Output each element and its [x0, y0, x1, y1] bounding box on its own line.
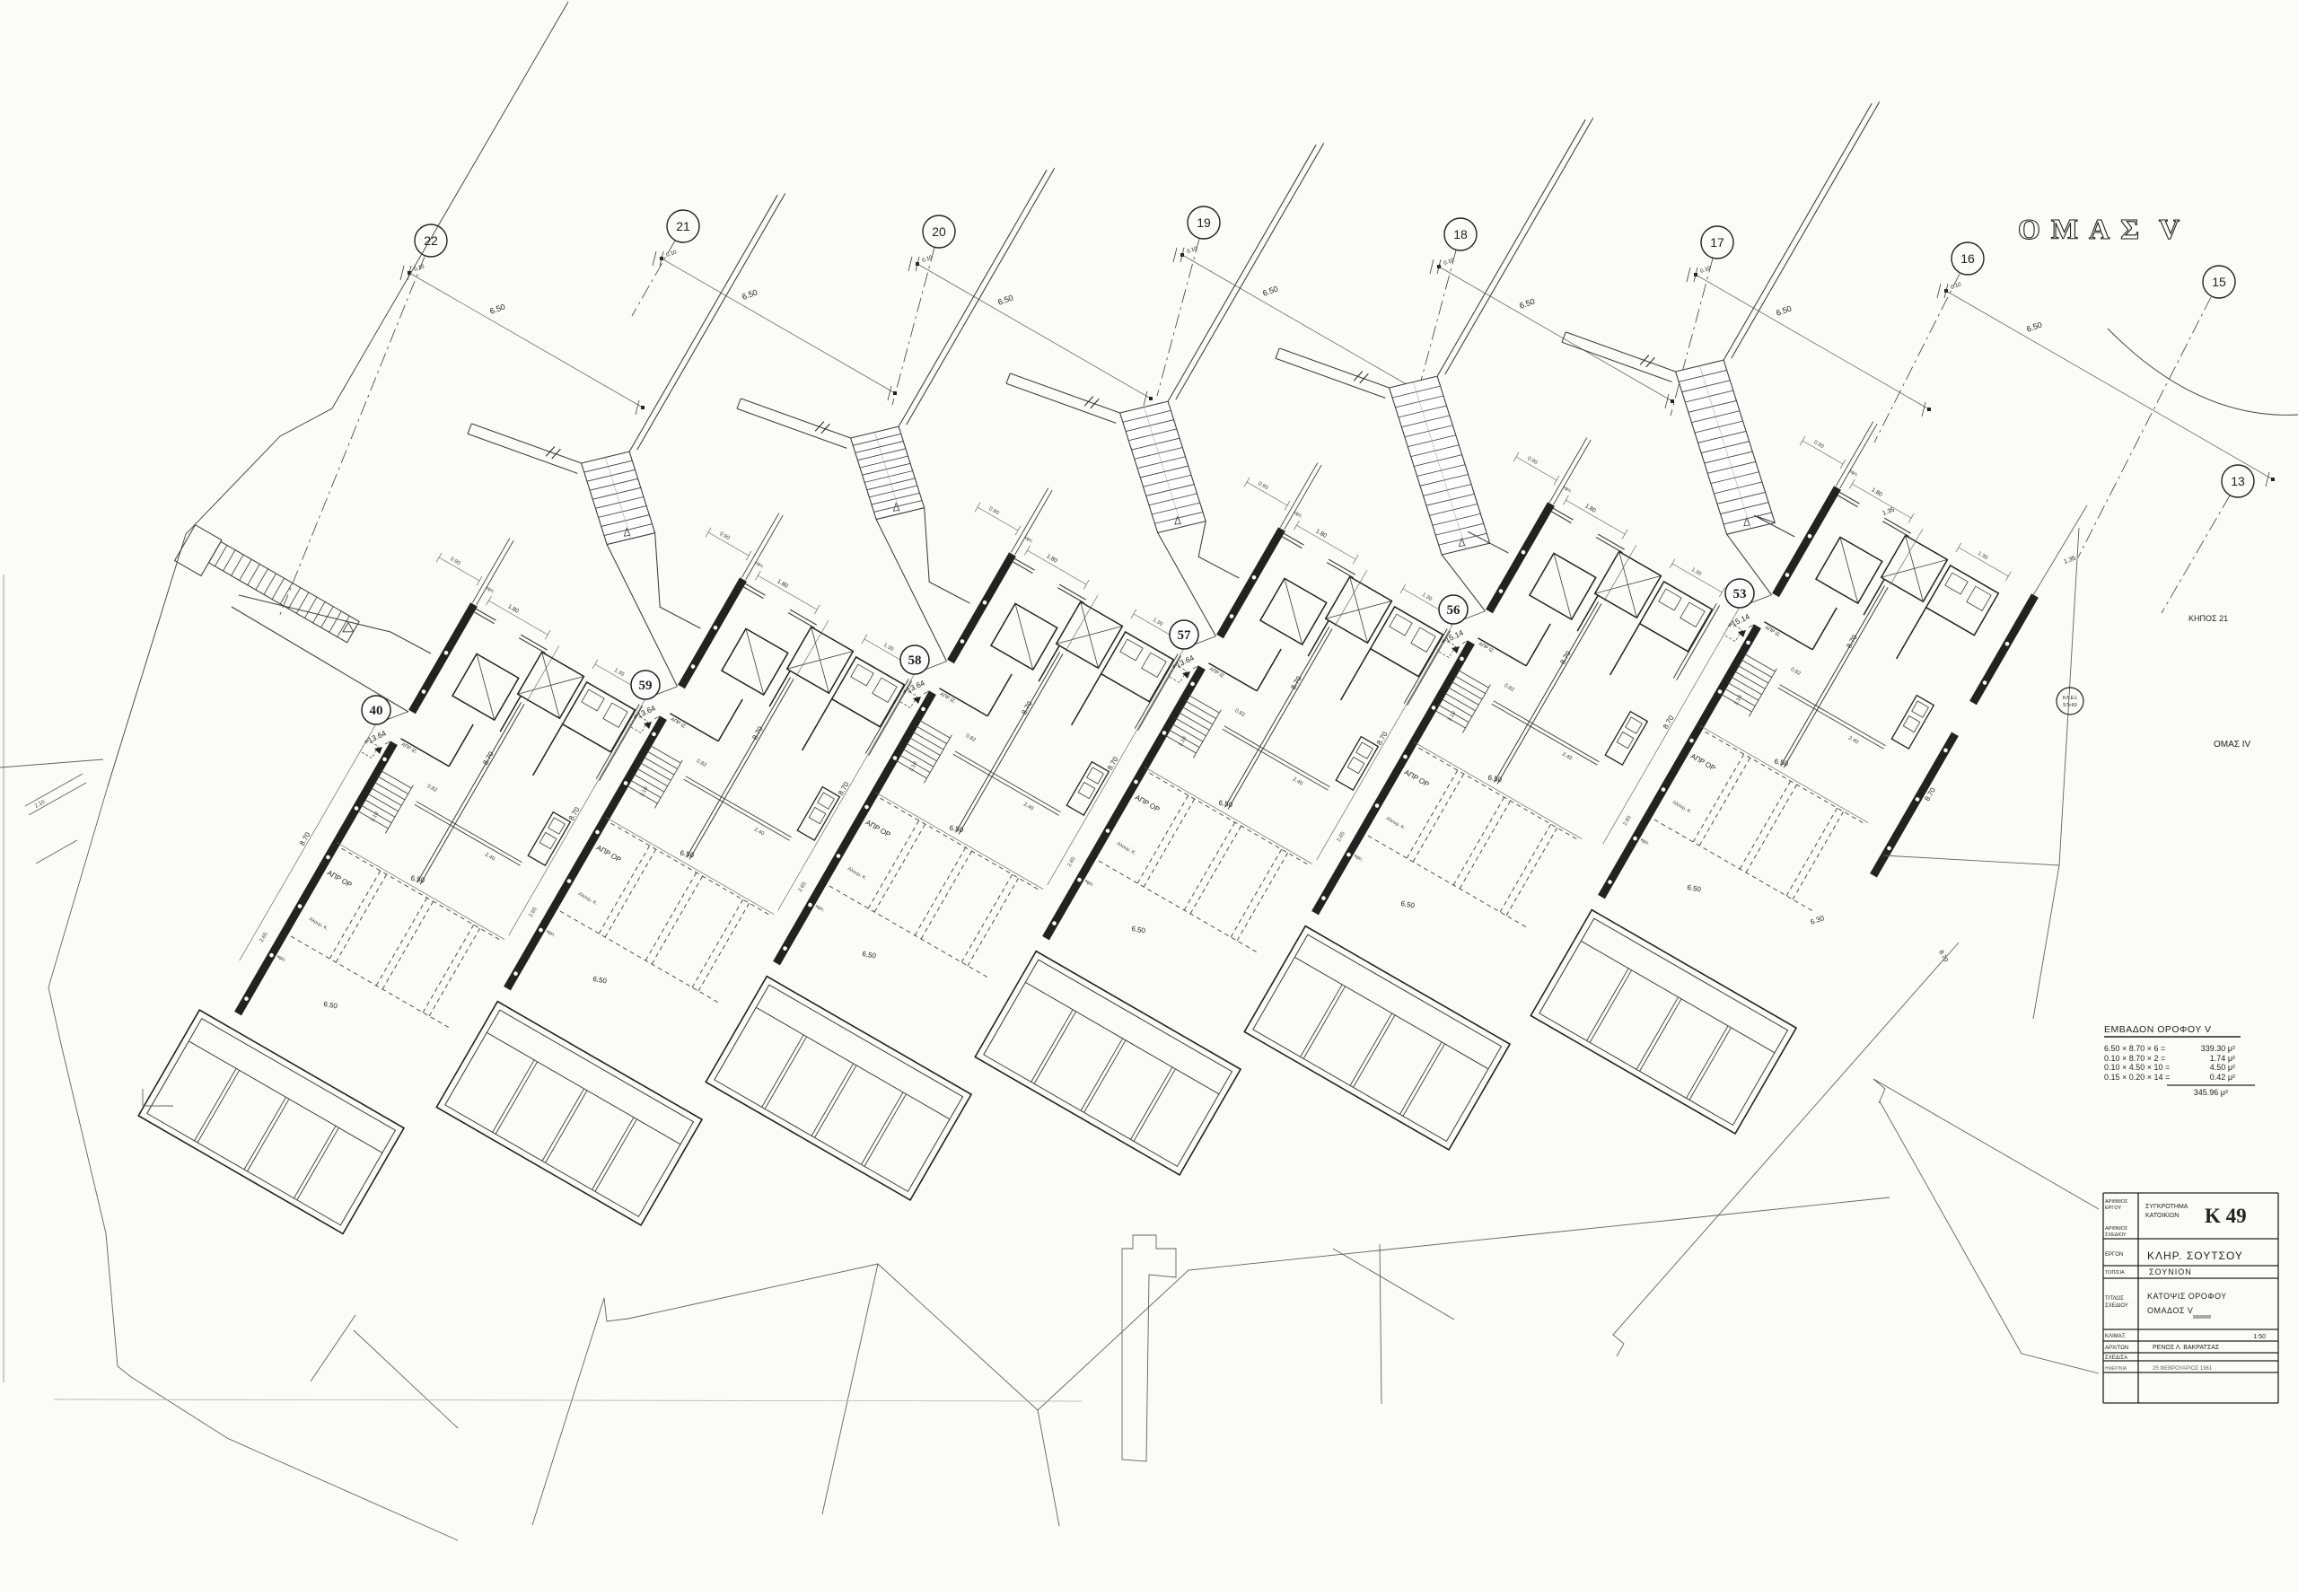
svg-text:57+60: 57+60	[2063, 703, 2076, 708]
svg-text:0.42 μ²: 0.42 μ²	[2210, 1073, 2235, 1082]
svg-text:19: 19	[1197, 215, 1211, 230]
svg-text:20: 20	[932, 224, 946, 239]
svg-text:13: 13	[2231, 474, 2245, 488]
svg-text:V: V	[2159, 213, 2180, 245]
svg-text:ΑΡΙΘΜΟΣ: ΑΡΙΘΜΟΣ	[2105, 1226, 2128, 1232]
svg-text:56: 56	[1447, 603, 1461, 618]
svg-text:ΚΛΙΜΑΞ: ΚΛΙΜΑΞ	[2105, 1334, 2126, 1339]
svg-text:ΣΧΕΔ/ΣΑ: ΣΧΕΔ/ΣΑ	[2105, 1355, 2127, 1361]
svg-text:ΚΛ.ΕΞ: ΚΛ.ΕΞ	[2063, 696, 2078, 701]
svg-text:22: 22	[424, 233, 438, 248]
svg-text:Κ 49: Κ 49	[2205, 1205, 2247, 1227]
svg-text:53: 53	[1733, 587, 1747, 601]
svg-text:0.10 × 8.70 × 2 =: 0.10 × 8.70 × 2 =	[2104, 1054, 2165, 1063]
svg-text:ΚΛΗΡ. ΣΟΥΤΣΟΥ: ΚΛΗΡ. ΣΟΥΤΣΟΥ	[2147, 1250, 2243, 1262]
svg-text:15: 15	[2212, 275, 2226, 289]
svg-text:ΟΜΑΣ: ΟΜΑΣ	[2018, 213, 2150, 245]
svg-text:18: 18	[1453, 227, 1468, 241]
svg-text:58: 58	[908, 653, 922, 668]
svg-text:ΡΕΝΟΣ Λ. ΒΑΚΡΑΤΣΑΣ: ΡΕΝΟΣ Λ. ΒΑΚΡΑΤΣΑΣ	[2153, 1345, 2220, 1351]
svg-text:ΣΥΓΚΡΟΤΗΜΑ: ΣΥΓΚΡΟΤΗΜΑ	[2145, 1204, 2188, 1210]
svg-text:345.96 μ²: 345.96 μ²	[2194, 1088, 2228, 1097]
svg-text:ΑΡΧ/ΤΩΝ: ΑΡΧ/ΤΩΝ	[2105, 1346, 2128, 1351]
svg-text:ΗΜΕΡ/ΝΙΑ: ΗΜΕΡ/ΝΙΑ	[2105, 1366, 2127, 1372]
svg-text:ΚΑΤΟΨΙΣ ΟΡΟΦΟΥ: ΚΑΤΟΨΙΣ ΟΡΟΦΟΥ	[2147, 1292, 2227, 1301]
svg-text:16: 16	[1960, 251, 1975, 266]
svg-text:59: 59	[639, 679, 653, 693]
svg-text:ΑΡΙΘΜΟΣ: ΑΡΙΘΜΟΣ	[2105, 1199, 2128, 1205]
svg-text:ΕΡΓΟΝ: ΕΡΓΟΝ	[2105, 1252, 2123, 1258]
svg-text:4.50 μ²: 4.50 μ²	[2210, 1063, 2235, 1072]
svg-text:ΕΜΒΑΔΟΝ ΟΡΟΦΟΥ V: ΕΜΒΑΔΟΝ ΟΡΟΦΟΥ V	[2104, 1024, 2212, 1035]
svg-text:ΤΟΠ/ΣΙΑ: ΤΟΠ/ΣΙΑ	[2105, 1270, 2125, 1276]
svg-text:ΣΧΕΔΙΟΥ: ΣΧΕΔΙΟΥ	[2105, 1232, 2127, 1238]
svg-text:40: 40	[370, 704, 383, 718]
svg-text:1.74 μ²: 1.74 μ²	[2210, 1054, 2235, 1063]
svg-text:ΣΧΕΔΙΟΥ: ΣΧΕΔΙΟΥ	[2105, 1303, 2128, 1309]
svg-text:ΤΙΤΛΟΣ: ΤΙΤΛΟΣ	[2105, 1296, 2124, 1302]
svg-text:21: 21	[676, 219, 690, 233]
svg-text:ΟΜΑΣ IV: ΟΜΑΣ IV	[2214, 740, 2251, 750]
svg-text:0.15 × 0.20 × 14 =: 0.15 × 0.20 × 14 =	[2104, 1073, 2170, 1082]
svg-text:339.30 μ²: 339.30 μ²	[2201, 1044, 2235, 1053]
svg-text:57: 57	[1178, 628, 1192, 643]
svg-text:ΚΗΠΟΣ 21: ΚΗΠΟΣ 21	[2188, 614, 2228, 623]
svg-text:17: 17	[1710, 235, 1724, 250]
svg-text:0.10 × 4.50 × 10 =: 0.10 × 4.50 × 10 =	[2104, 1063, 2170, 1072]
svg-text:ΟΜΑΔΟΣ V: ΟΜΑΔΟΣ V	[2147, 1306, 2193, 1315]
svg-text:25 ΦΕΒΡΟΥΑΡΙΟΣ 1961: 25 ΦΕΒΡΟΥΑΡΙΟΣ 1961	[2153, 1366, 2213, 1372]
svg-text:ΣΟΥΝΙΟΝ: ΣΟΥΝΙΟΝ	[2149, 1267, 2192, 1276]
svg-text:ΕΡΓΟΥ: ΕΡΓΟΥ	[2105, 1206, 2121, 1211]
svg-text:1:50: 1:50	[2253, 1334, 2266, 1340]
svg-text:6.50 × 8.70 × 6 =: 6.50 × 8.70 × 6 =	[2104, 1044, 2165, 1053]
svg-text:ΚΑΤΟΙΚΙΩΝ: ΚΑΤΟΙΚΙΩΝ	[2145, 1213, 2179, 1219]
